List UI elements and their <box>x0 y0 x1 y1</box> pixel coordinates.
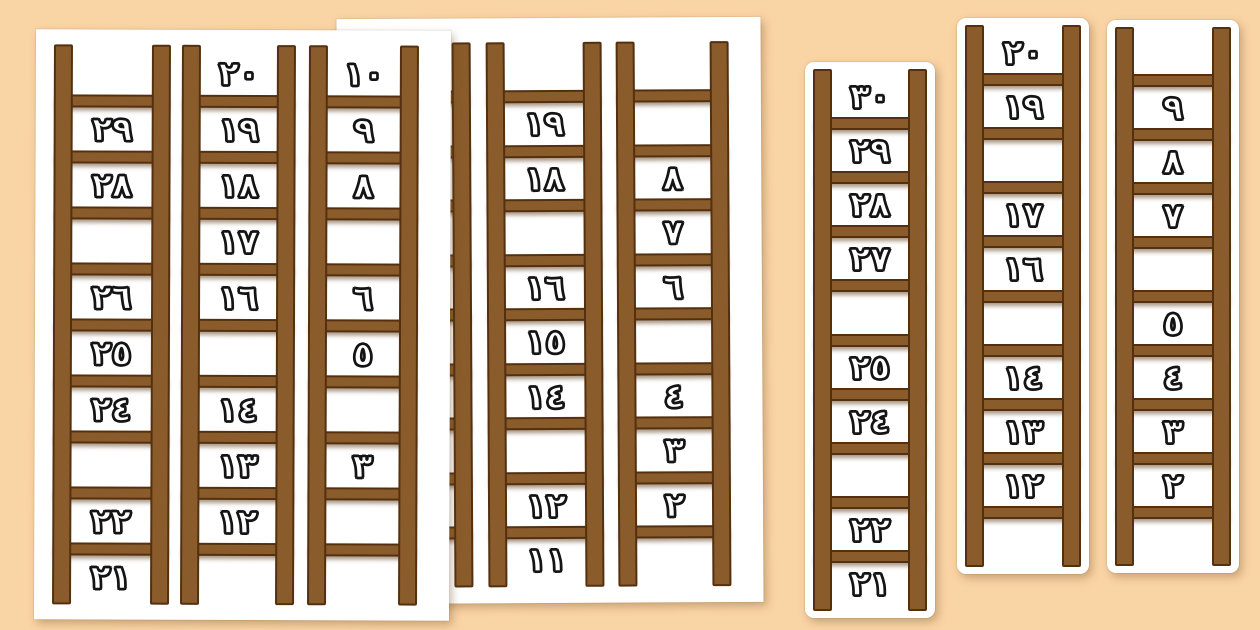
ladder-blank-slot <box>985 133 1061 187</box>
ladder-number: ٢٩ <box>74 100 151 156</box>
ladder-rail-right <box>908 69 927 611</box>
ladder-rail-left <box>616 42 638 587</box>
ladder-number: ٥ <box>328 325 398 381</box>
ladder-blank-slot <box>201 325 275 381</box>
ladder-number: ١٦ <box>507 260 583 315</box>
ladder-number: ٢٢ <box>72 492 149 548</box>
number-ladder-8-2: ٨٧٦٤٣٢ <box>616 41 732 587</box>
ladder-blank-slot <box>508 423 584 478</box>
ladder-rail-right <box>1212 27 1231 566</box>
ladder-number: ٢٤ <box>833 394 907 448</box>
ladder-number: ١٦ <box>201 269 275 325</box>
number-ladder-30-21: ٣٠٢٩٢٨٢٧٢٥٢٤٢٢٢١ <box>813 69 927 611</box>
ladder-number: ١٠ <box>329 45 399 101</box>
ladder-blank-slot <box>200 549 274 605</box>
ladder-number: ٩ <box>1135 81 1211 135</box>
ladder-number: ٣ <box>327 437 397 493</box>
ladder-blank-slot <box>985 513 1061 567</box>
ladder-blank-slot <box>1135 243 1211 297</box>
ladder-number: ٦ <box>328 269 398 325</box>
ladder-rail-left <box>813 69 832 611</box>
ladder-number: ٨ <box>328 157 398 213</box>
ladder-rail-right <box>1062 25 1081 567</box>
ladder-number: ٣٠ <box>833 69 907 123</box>
ladder-rail-left <box>486 42 508 587</box>
ladder-number: ٢٠ <box>985 25 1061 79</box>
ladder-number: ١٨ <box>506 151 582 206</box>
ladder-blank-slot <box>327 493 397 549</box>
ladder-blank-slot <box>833 286 907 340</box>
ladder-number: ١٨ <box>201 157 275 213</box>
ladder-rail-left <box>52 44 73 604</box>
ladder-strip-10-1: ٩٨٧٥٤٣٢ <box>1107 20 1239 573</box>
ladder-number: ٥ <box>1135 297 1211 351</box>
ladder-rail-left <box>180 45 201 605</box>
ladder-number: ٢٨ <box>73 156 150 212</box>
ladder-number: ٢٥ <box>73 324 150 380</box>
ladder-blank-slot <box>636 41 709 96</box>
ladder-number: ٧ <box>636 205 709 260</box>
ladder-rail-right <box>710 41 732 586</box>
ladder-blank-slot <box>985 296 1061 350</box>
ladder-rail-right <box>583 42 605 587</box>
ladder-blank-slot <box>73 212 150 268</box>
ladder-number: ٢٤ <box>73 380 150 436</box>
ladder-number: ١٦ <box>985 242 1061 296</box>
ladder-strip-20-11: ٢٠١٩١٧١٦١٤١٣١٢ <box>957 18 1089 574</box>
ladder-number: ١٧ <box>985 188 1061 242</box>
ladder-blank-slot <box>74 44 151 100</box>
ladder-number: ١٥ <box>507 314 583 369</box>
ladder-number: ١٤ <box>507 369 583 424</box>
ladder-number: ١٤ <box>201 381 275 437</box>
ladder-number: ١٤ <box>985 350 1061 404</box>
ladder-number: ٢٩ <box>833 123 907 177</box>
ladder-number: ٣ <box>638 423 711 478</box>
ladder-rail-left <box>1115 27 1134 566</box>
front-worksheet-page: ٢٩٢٨٢٦٢٥٢٤٢٢٢١ ٢٠١٩١٨١٧١٦١٤١٣١٢ ١٠٩٨٦٥٣ <box>34 29 451 620</box>
ladder-number: ١٩ <box>985 79 1061 133</box>
ladder-blank-slot <box>638 532 711 587</box>
ladder-rail-right <box>398 46 419 606</box>
ladder-number: ٣ <box>1135 404 1211 458</box>
ladder-rail-left <box>307 45 328 605</box>
number-ladder-29-21: ٢٩٢٨٢٦٢٥٢٤٢٢٢١ <box>52 44 171 604</box>
ladder-number: ٢٨ <box>833 177 907 231</box>
number-ladder-19-11: ١٩١٨١٦١٥١٤١٢١١ <box>486 42 605 588</box>
ladder-number: ٧ <box>1135 189 1211 243</box>
ladder-blank-slot <box>637 314 710 369</box>
ladder-strip-30-21: ٣٠٢٩٢٨٢٧٢٥٢٤٢٢٢١ <box>805 62 935 618</box>
ladder-blank-slot <box>506 205 582 260</box>
ladder-number: ١٢ <box>508 478 584 533</box>
ladder-blank-slot <box>328 381 398 437</box>
ladder-number: ٢١ <box>833 557 907 611</box>
ladder-rail-right <box>452 42 474 587</box>
ladder-number: ٢٥ <box>833 340 907 394</box>
ladder-number: ٢٠ <box>202 45 276 101</box>
ladder-number: ١٢ <box>985 459 1061 513</box>
ladder-blank-slot <box>1135 512 1211 566</box>
ladder-number: ٨ <box>636 150 709 205</box>
ladder-blank-slot <box>833 448 907 502</box>
ladder-number: ٢٦ <box>73 268 150 324</box>
ladder-number: ١٣ <box>200 437 274 493</box>
ladder-number: ٢٧ <box>833 232 907 286</box>
number-ladder-10-3: ١٠٩٨٦٥٣ <box>307 45 419 605</box>
number-ladder-20-11: ٢٠١٩١٧١٦١٤١٣١٢ <box>965 25 1081 567</box>
number-ladder-9-2: ٩٨٧٥٤٣٢ <box>1115 27 1231 566</box>
ladder-number: ٦ <box>637 259 710 314</box>
number-ladder-20-12: ٢٠١٩١٨١٧١٦١٤١٣١٢ <box>180 45 296 605</box>
ladder-blank-slot <box>327 549 397 605</box>
ladder-number: ١٩ <box>506 96 582 151</box>
ladder-number: ٢ <box>1135 458 1211 512</box>
ladder-number: ١٧ <box>201 213 275 269</box>
worksheet-preview-scene: ١٩١٨١٦١٥١٤١٢١١ ٨٧٦٤٣٢ ٢٩٢٨٢٦٢٥٢٤٢٢٢١ ٢٠١… <box>0 0 1260 630</box>
ladder-blank-slot <box>72 436 149 492</box>
ladder-number: ١١ <box>508 532 584 587</box>
ladder-number: ٢ <box>638 477 711 532</box>
ladder-rail-right <box>275 45 296 605</box>
ladder-number: ٢٢ <box>833 503 907 557</box>
ladder-blank-slot <box>328 213 398 269</box>
ladder-number: ٤ <box>1135 350 1211 404</box>
ladder-number: ١٩ <box>202 101 276 157</box>
ladder-rail-left <box>965 25 984 567</box>
ladder-blank-slot <box>1135 27 1211 81</box>
ladder-number: ٨ <box>1135 135 1211 189</box>
ladder-number: ١٢ <box>200 493 274 549</box>
ladder-blank-slot <box>636 96 709 151</box>
ladder-number: ١٣ <box>985 404 1061 458</box>
ladder-rail-right <box>150 45 171 605</box>
ladder-number: ٢١ <box>72 548 149 604</box>
ladder-blank-slot <box>506 42 582 97</box>
ladder-number: ٩ <box>329 101 399 157</box>
ladder-number: ٤ <box>637 368 710 423</box>
